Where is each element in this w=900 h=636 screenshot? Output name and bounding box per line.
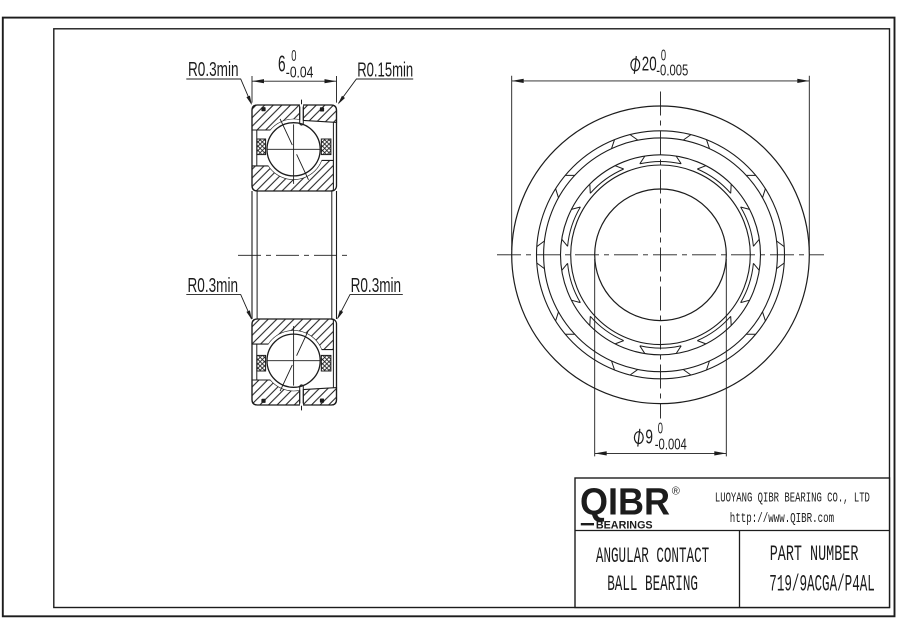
svg-text:LUOYANG QIBR BEARING CO., LTD: LUOYANG QIBR BEARING CO., LTD xyxy=(715,491,870,506)
svg-text:-0.04: -0.04 xyxy=(286,65,314,82)
svg-text:®: ® xyxy=(672,486,680,498)
svg-text:719/9ACGA/P4AL: 719/9ACGA/P4AL xyxy=(769,572,875,598)
svg-text:R0.3min: R0.3min xyxy=(188,58,239,81)
svg-text:PART NUMBER: PART NUMBER xyxy=(770,542,859,567)
svg-text:20: 20 xyxy=(642,53,657,76)
svg-text:6: 6 xyxy=(278,50,286,76)
svg-text:-0.004: -0.004 xyxy=(655,437,687,454)
svg-text:ANGULAR CONTACT: ANGULAR CONTACT xyxy=(596,544,709,569)
svg-text:http://www.QIBR.com: http://www.QIBR.com xyxy=(730,511,834,527)
svg-text:R0.3min: R0.3min xyxy=(188,274,239,297)
svg-text:R0.15min: R0.15min xyxy=(357,58,413,81)
svg-text:R0.3min: R0.3min xyxy=(351,274,402,297)
svg-text:QIBR: QIBR xyxy=(580,482,670,524)
svg-text:BALL BEARING: BALL BEARING xyxy=(607,572,698,597)
svg-text:9: 9 xyxy=(645,425,653,448)
svg-text:0: 0 xyxy=(291,48,296,65)
svg-text:-0.005: -0.005 xyxy=(656,62,688,79)
svg-text:BEARINGS: BEARINGS xyxy=(596,519,653,531)
svg-text:0: 0 xyxy=(658,421,663,438)
